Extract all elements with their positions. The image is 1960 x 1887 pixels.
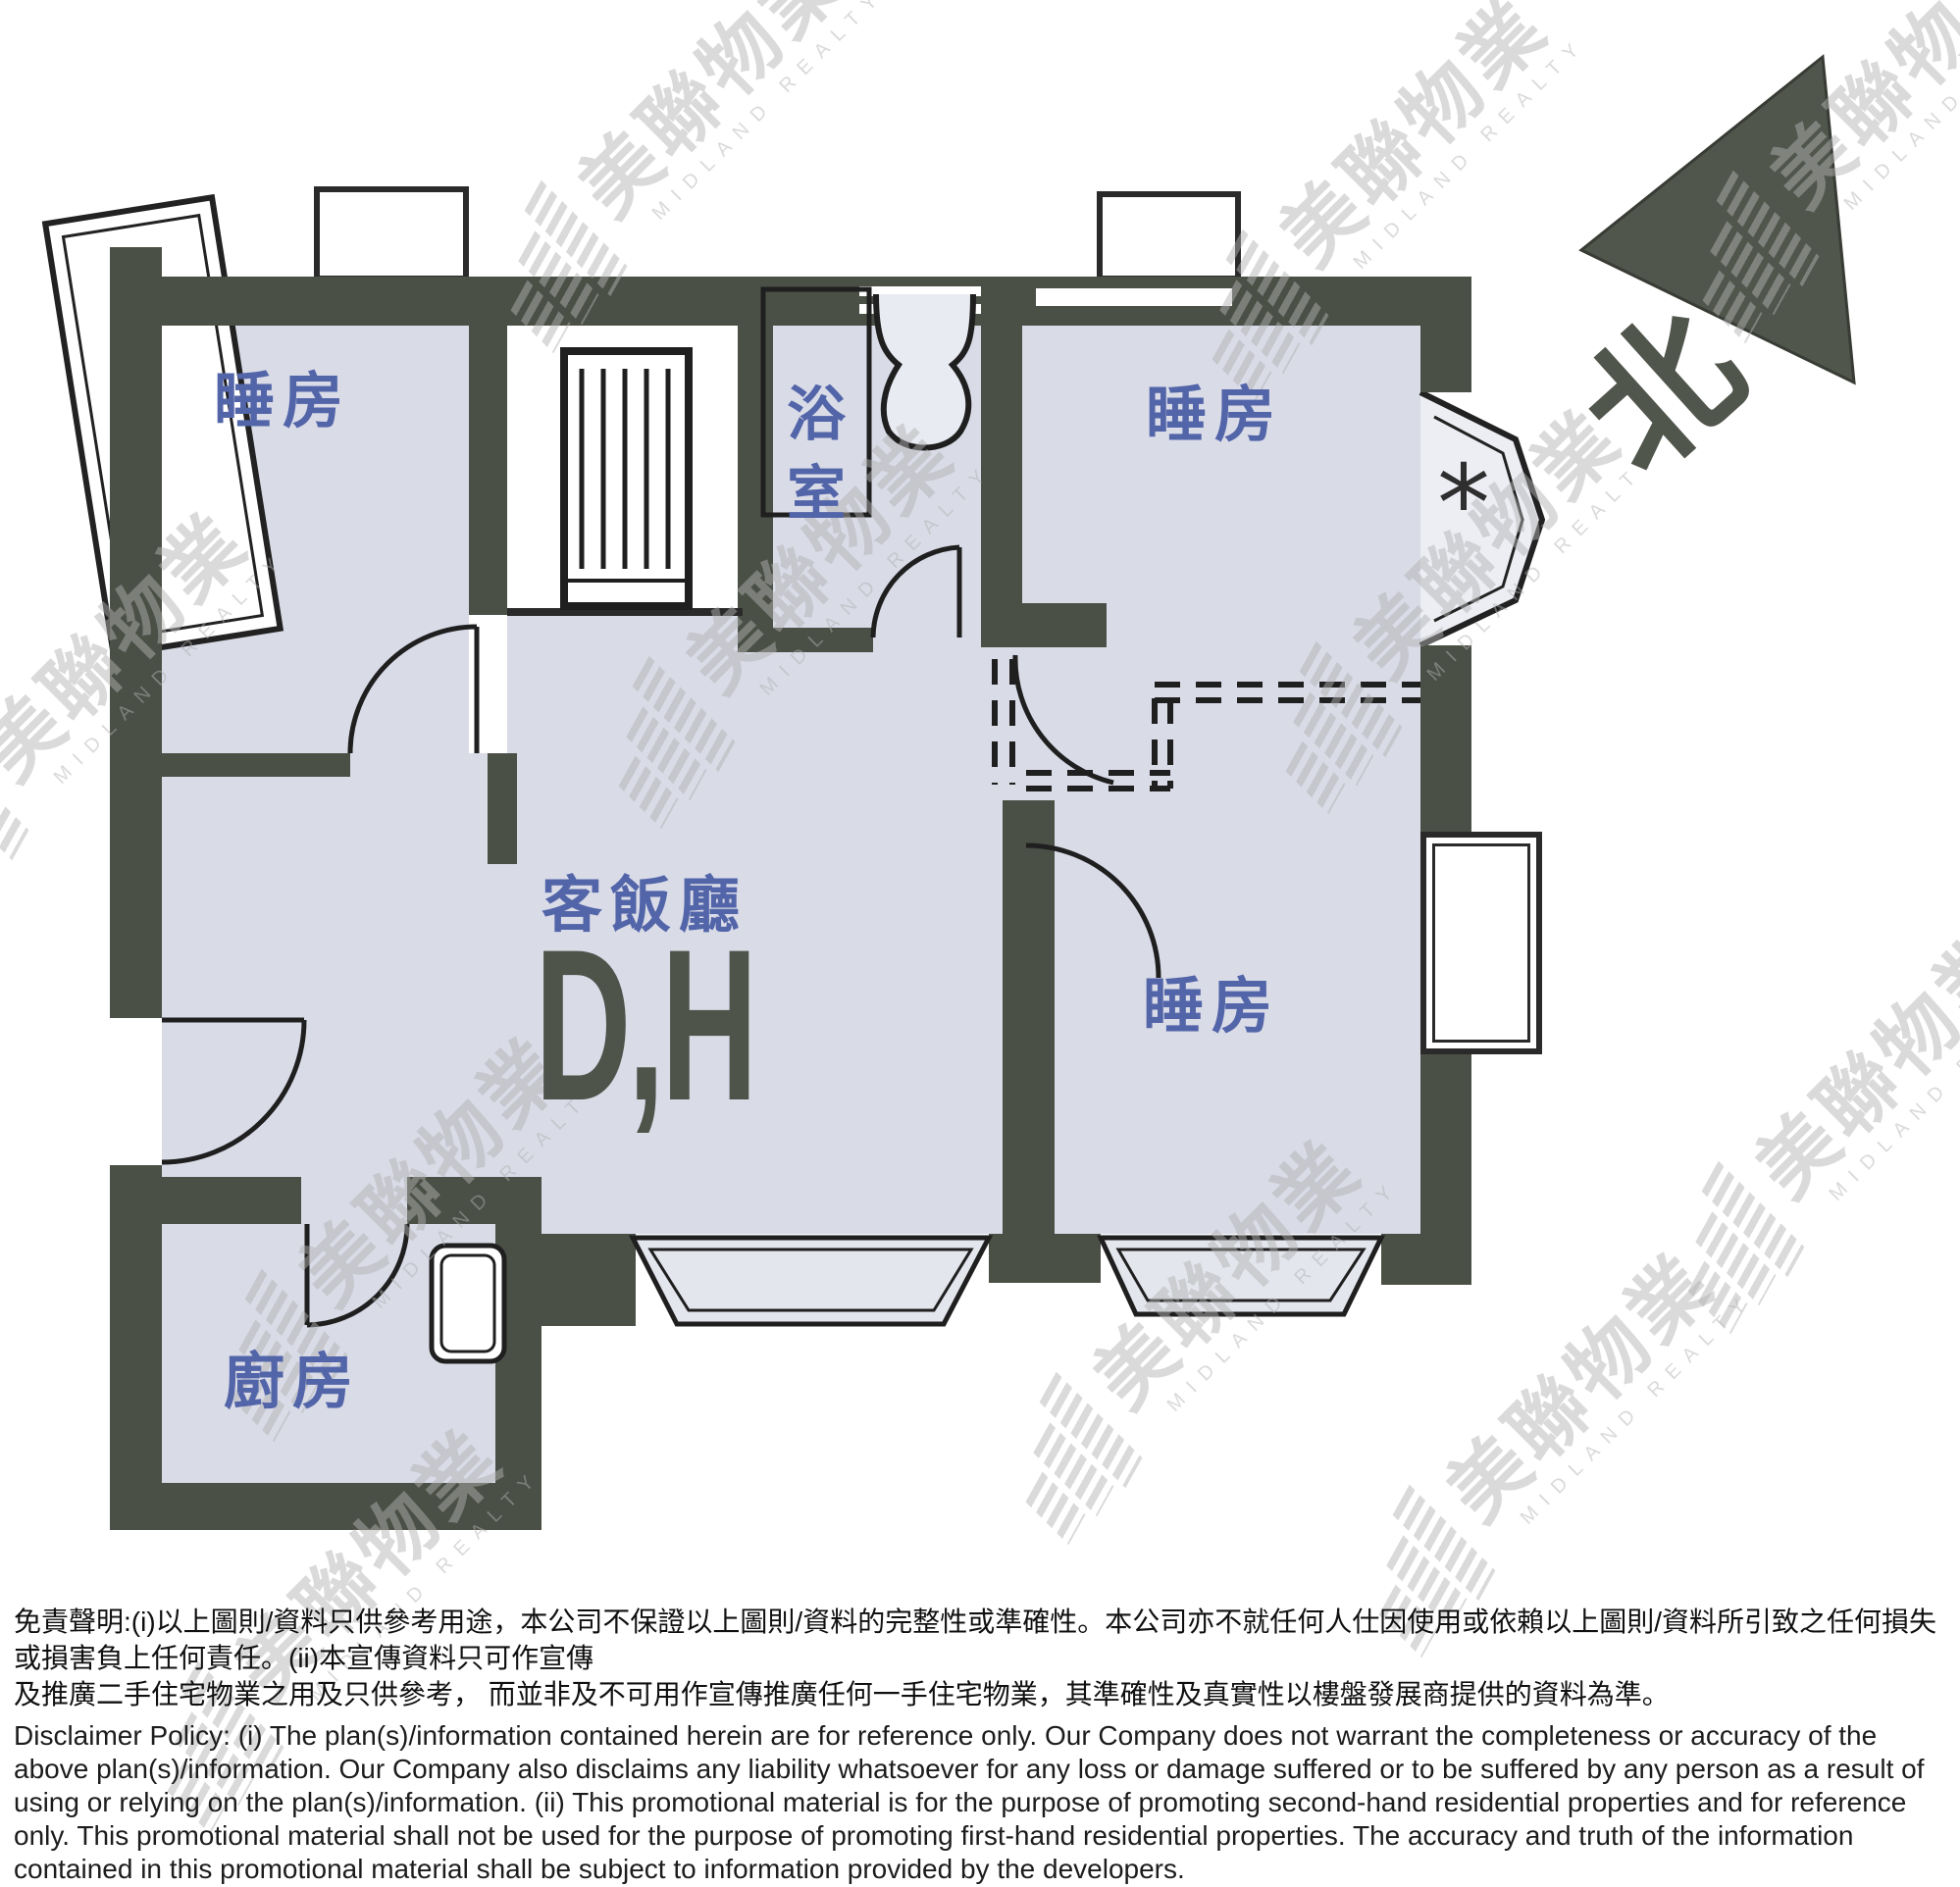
plan-linework <box>0 0 1960 1839</box>
dashed-partition <box>995 659 1420 789</box>
label-bedroom-bottom-right: 睡房 <box>1143 956 1280 1045</box>
window-asterisk-marker: * <box>1418 443 1509 566</box>
bathroom-door-arc <box>873 547 959 637</box>
label-living-dining-code: D,H <box>535 917 754 1133</box>
bottom-bay-windows <box>633 1238 1381 1324</box>
floor-plan-page: 美聯物業 MIDLAND REALTY 美聯物業 MIDLAND REALTY … <box>0 0 1960 1839</box>
br1-door-arc <box>350 627 477 753</box>
br3-door-arc <box>1026 845 1159 978</box>
louvre-shaft <box>564 351 689 606</box>
disclaimer-en: Disclaimer Policy: (i) The plan(s)/infor… <box>14 1719 1948 1887</box>
label-bedroom-top-left: 睡房 <box>214 351 351 439</box>
entrance-door-arc <box>162 1020 304 1162</box>
kitchen-door-arc <box>307 1224 407 1325</box>
br2-door-arc <box>1015 655 1113 783</box>
disclaimer-zh-line1: 免責聲明:(i)以上圖則/資料只供參考用途，本公司不保證以上圖則/資料的完整性或… <box>14 1605 1948 1677</box>
disclaimer-block: 免責聲明:(i)以上圖則/資料只供參考用途，本公司不保證以上圖則/資料的完整性或… <box>14 1605 1948 1887</box>
disclaimer-zh-line2: 及推廣二手住宅物業之用及只供參考， 而並非及不可用作宣傳推廣任何一手住宅物業，其… <box>14 1677 1948 1713</box>
toilet-icon <box>876 294 973 448</box>
label-kitchen: 廚房 <box>224 1332 361 1420</box>
label-bedroom-top-right: 睡房 <box>1146 365 1283 453</box>
sink-icon <box>432 1246 504 1361</box>
label-bathroom: 浴室 <box>787 375 851 534</box>
